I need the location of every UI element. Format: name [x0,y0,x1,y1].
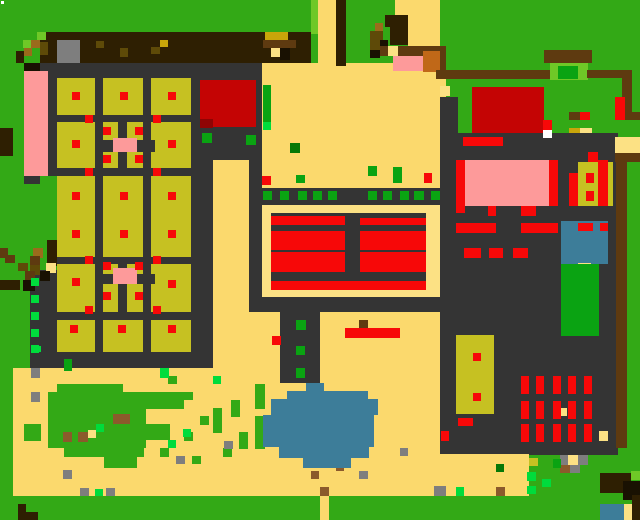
village-map-canvas[interactable] [0,0,640,520]
game-screen [0,0,640,520]
